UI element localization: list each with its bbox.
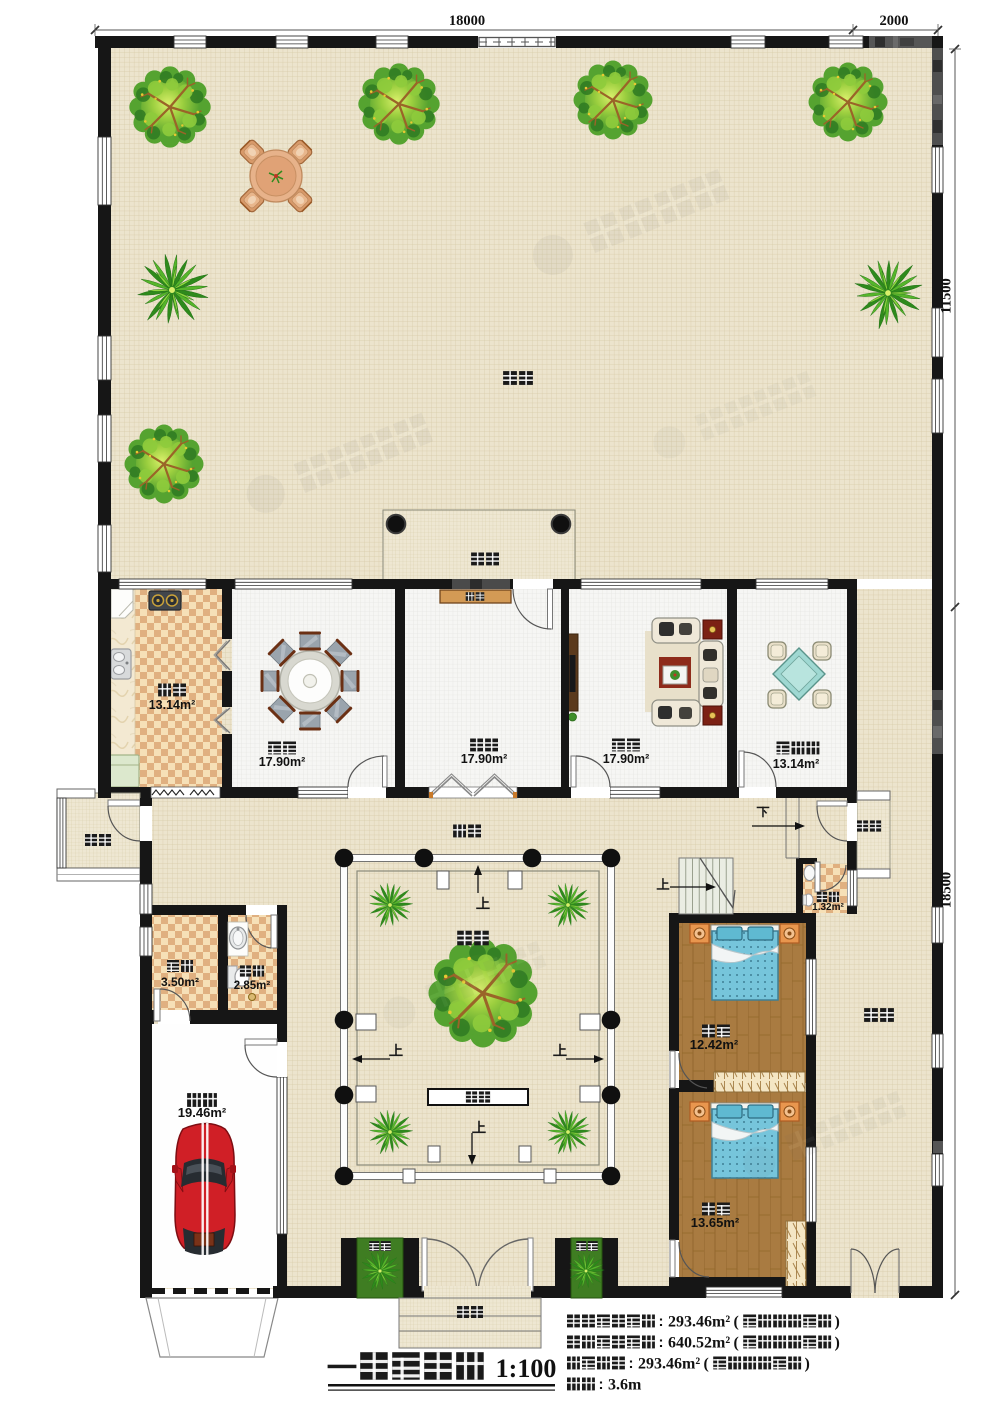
svg-text:(: ( — [734, 1335, 739, 1352]
svg-text:(: ( — [704, 1356, 709, 1373]
svg-text::: : — [659, 1334, 664, 1351]
svg-text:1:100: 1:100 — [496, 1354, 557, 1383]
svg-text:(: ( — [734, 1314, 739, 1331]
svg-text:13.14m²: 13.14m² — [773, 757, 820, 771]
svg-text::: : — [629, 1355, 634, 1372]
svg-text:18000: 18000 — [449, 13, 485, 29]
svg-text:): ) — [835, 1314, 840, 1331]
svg-text:17.90m²: 17.90m² — [603, 752, 650, 766]
svg-text:11500: 11500 — [939, 278, 955, 313]
svg-text:293.46m²: 293.46m² — [638, 1356, 700, 1373]
svg-text::: : — [659, 1313, 664, 1330]
svg-text::: : — [599, 1376, 604, 1393]
svg-text:2.85m²: 2.85m² — [234, 980, 271, 992]
svg-text:3.6m: 3.6m — [608, 1377, 642, 1394]
svg-text:17.90m²: 17.90m² — [259, 755, 306, 769]
svg-text:): ) — [835, 1335, 840, 1352]
svg-text:): ) — [805, 1356, 810, 1373]
svg-text:19.46m²: 19.46m² — [178, 1105, 227, 1120]
svg-text:293.46m²: 293.46m² — [668, 1314, 730, 1331]
svg-text:18500: 18500 — [939, 872, 955, 908]
svg-text:640.52m²: 640.52m² — [668, 1335, 730, 1352]
svg-text:12.42m²: 12.42m² — [690, 1037, 739, 1052]
svg-text:13.65m²: 13.65m² — [691, 1215, 740, 1230]
svg-text:1.32m²: 1.32m² — [812, 902, 844, 913]
svg-text:17.90m²: 17.90m² — [461, 752, 508, 766]
svg-text:2000: 2000 — [880, 13, 909, 29]
svg-text:13.14m²: 13.14m² — [149, 698, 196, 712]
svg-text:3.50m²: 3.50m² — [161, 975, 199, 989]
